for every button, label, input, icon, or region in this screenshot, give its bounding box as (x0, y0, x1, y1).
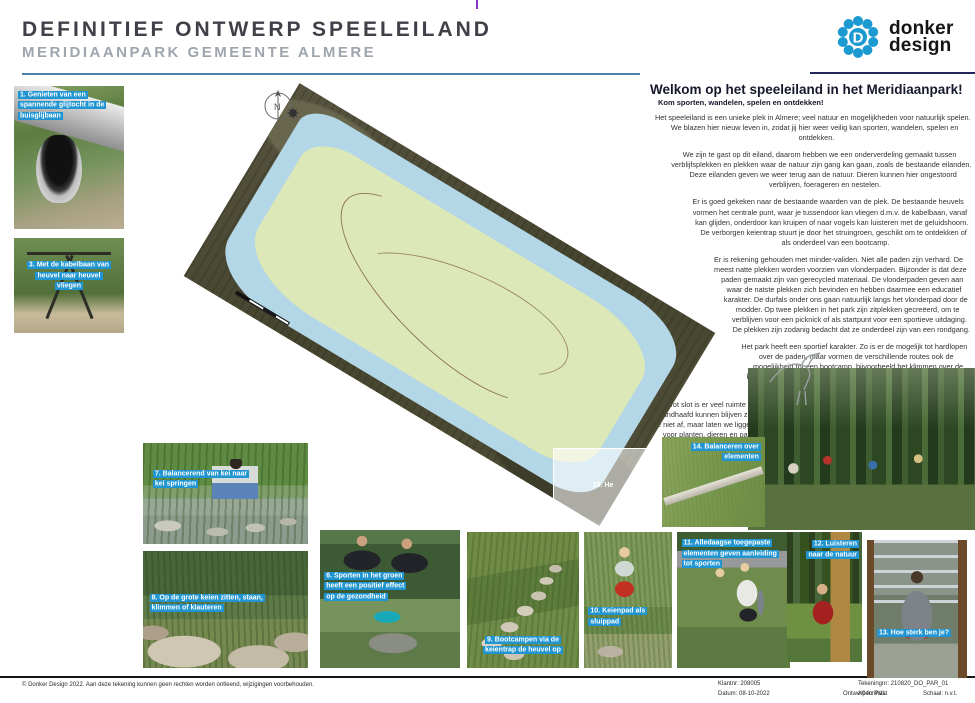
photo-overlay-faded: 15. He (553, 448, 653, 532)
photo-grote-keien: 8. Op de grote keien zitten, staan, klim… (143, 551, 308, 668)
photo-caption: 1. Genieten van een spannende glijtocht … (18, 91, 106, 120)
heron-sketch-icon (760, 342, 824, 408)
photo-caption: 15. He (554, 482, 652, 489)
brand-line-2: design (889, 37, 954, 54)
welcome-subheading: Kom sporten, wandelen, spelen en ontdekk… (658, 98, 972, 107)
photo-caption: 7. Balancerend van kei naar kei springen (153, 470, 249, 489)
photo-luisteren-natuur: 12. Luisteren naar de natuur (787, 532, 862, 662)
photo-buisglijbaan: 1. Genieten van een spannende glijtocht … (14, 86, 124, 229)
cursor-artifact (476, 0, 478, 9)
footer-date: Datum: 08-10-2022 (718, 691, 770, 697)
footer-format: A0 formaat (858, 691, 887, 697)
page-title: DEFINITIEF ONTWERP SPEELEILAND (22, 18, 492, 42)
zipline-frame (27, 252, 111, 255)
photo-caption: 12. Luisteren naar de natuur (806, 540, 859, 559)
header-divider (22, 73, 640, 75)
brand-logo: D donker design (833, 12, 954, 62)
photo-kei-springen: 7. Balancerend van kei naar kei springen (143, 443, 308, 544)
compass-icon: N (258, 84, 304, 130)
photo-caption: 13. Hoe sterk ben je? (877, 629, 951, 637)
compass-north-label: N (274, 102, 281, 112)
photo-caption: 6. Sporten in het groen heeft een positi… (324, 572, 406, 601)
photo-sporten-groen: 6. Sporten in het groen heeft een positi… (320, 530, 460, 668)
flower-logo-icon: D (833, 12, 883, 62)
footer-drawing-number: Tekeningnr: 210820_DO_PAR_01 (858, 681, 948, 687)
photo-caption: 14. Balanceren over elementen (691, 443, 761, 462)
photo-caption: 10. Keienpad als sluippad (588, 607, 647, 626)
footer-client: Klantnr: 208005 (718, 681, 760, 687)
logo-divider (810, 72, 975, 74)
footer-divider (0, 676, 975, 678)
page-subtitle: MERIDIAANPARK GEMEENTE ALMERE (22, 44, 376, 61)
photo-kabelbaan: 3. Met de kabelbaan van heuvel naar heuv… (14, 238, 124, 333)
photo-caption: 11. Alledaagse toegepaste elementen geve… (682, 539, 779, 568)
photo-hoe-sterk: 13. Hoe sterk ben je? (867, 540, 967, 678)
logo-monogram: D (853, 30, 864, 47)
photo-caption: 3. Met de kabelbaan van heuvel naar heuv… (27, 261, 111, 290)
footer-scale: Schaal: n.v.t. (923, 691, 957, 697)
photo-caption: 8. Op de grote keien zitten, staan, klim… (150, 594, 265, 613)
photo-keientrap: 9. Bootcampen via de keientrap de heuvel… (467, 532, 579, 668)
welcome-heading: Welkom op het speeleiland in het Meridia… (650, 82, 972, 97)
photo-balanceren: 14. Balanceren over elementen (662, 437, 765, 527)
design-poster: DEFINITIEF ONTWERP SPEELEILAND MERIDIAAN… (0, 0, 975, 703)
copyright-text: © Donker Design 2022. Aan deze tekening … (22, 682, 314, 688)
photo-alledaagse-elementen: 11. Alledaagse toegepaste elementen geve… (677, 532, 790, 668)
photo-caption: 9. Bootcampen via de keientrap de heuvel… (483, 636, 563, 655)
brand-name: donker design (889, 20, 954, 55)
photo-keienpad: 10. Keienpad als sluippad (584, 532, 672, 668)
map-island (233, 132, 664, 479)
